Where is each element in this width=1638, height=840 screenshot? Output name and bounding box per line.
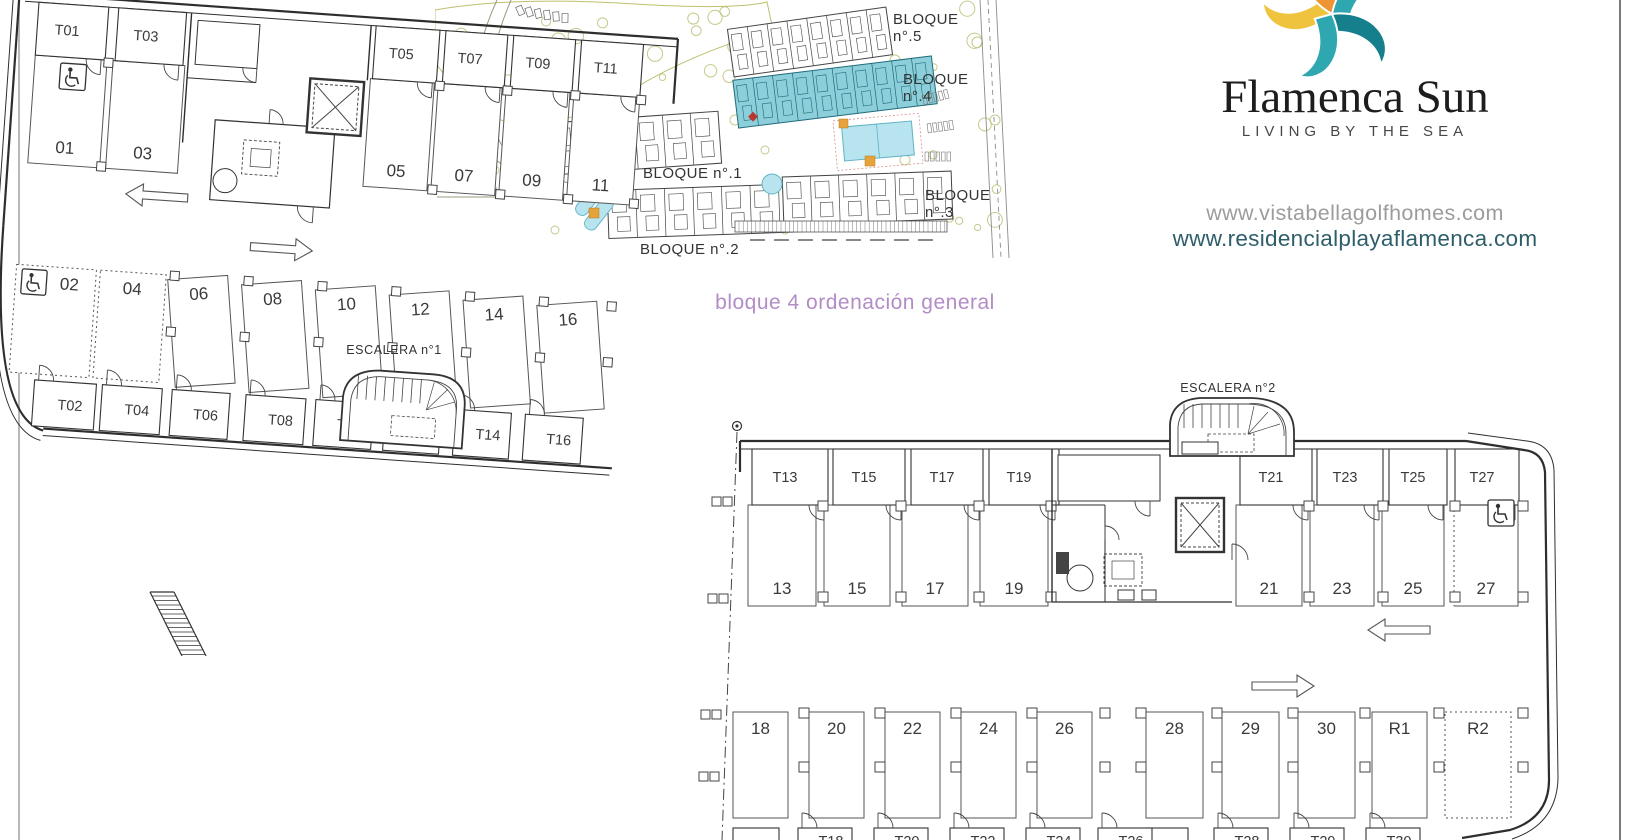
stall-number: 08	[263, 289, 283, 309]
ramp-hatch	[150, 592, 206, 656]
stall-number: 09	[522, 170, 542, 190]
storage-label: T24	[1047, 834, 1072, 840]
storage-label: T19	[1007, 470, 1032, 486]
storage-label: T30	[1387, 834, 1412, 840]
elevator	[1176, 498, 1224, 552]
parking-stall: 28	[1146, 712, 1203, 818]
stall-number: 27	[1477, 579, 1496, 598]
stall-number: 19	[1005, 579, 1024, 598]
storage-label: T01	[54, 22, 80, 40]
stall-number: 24	[979, 719, 998, 738]
parking-stall: 26	[1037, 712, 1092, 818]
stall-number: 02	[59, 274, 79, 294]
storage-label: T22	[971, 834, 996, 840]
traffic-arrow-icon	[250, 236, 313, 262]
stall-number: 03	[133, 143, 153, 163]
stall-number: 04	[122, 279, 142, 299]
parking-stall: 25	[1382, 505, 1444, 606]
traffic-arrow-icon	[1252, 675, 1314, 697]
parking-stall: 04	[93, 270, 166, 382]
storage-label: T16	[546, 432, 572, 450]
storage-label: T26	[1119, 834, 1144, 840]
storage-label: T05	[388, 46, 414, 64]
stall-number: 25	[1404, 579, 1423, 598]
stall-number: 30	[1317, 719, 1336, 738]
stall-number: 12	[410, 299, 430, 319]
traffic-arrow-icon	[1368, 619, 1430, 641]
stall-number: R2	[1467, 719, 1489, 738]
parking-stall: R2	[1445, 712, 1511, 818]
parking-stall: 30	[1298, 712, 1355, 818]
parking-stall: 08	[242, 281, 309, 393]
stall-number: 28	[1165, 719, 1184, 738]
parking-stall: 23	[1310, 505, 1374, 606]
stall-number: 22	[903, 719, 922, 738]
escalera-2-label: ESCALERA n°2	[1180, 381, 1276, 395]
parking-stall: 29	[1222, 712, 1279, 818]
stall-number: 10	[336, 294, 356, 314]
parking-stall: 13	[748, 505, 816, 606]
storage-label: T13	[773, 470, 798, 486]
stall-number: 05	[386, 161, 406, 181]
parking-stall: 11	[566, 93, 639, 205]
stall-number: 29	[1241, 719, 1260, 738]
accessible-parking-icon	[1488, 500, 1514, 526]
storage-label: T18	[819, 834, 844, 840]
storage-label: T23	[1333, 470, 1358, 486]
stall-number: 17	[926, 579, 945, 598]
storage-label: T08	[267, 412, 293, 430]
storage-label: T25	[1401, 470, 1426, 486]
storage-label: T17	[930, 470, 955, 486]
stall-number: 01	[55, 138, 75, 158]
storage-label: T27	[1470, 470, 1495, 486]
storage-unit: T26	[1098, 813, 1152, 840]
stall-number: 18	[751, 719, 770, 738]
elevator	[307, 78, 365, 136]
right-wing: 1315171921232527T13T15T17T19T21T23T25T27…	[733, 433, 1558, 840]
stall-number: 15	[848, 579, 867, 598]
parking-stall: 03	[106, 61, 185, 174]
accessible-parking-icon	[21, 269, 48, 296]
left-wing: 010305070911T01T03T05T07T09T110204060810…	[0, 0, 678, 483]
stall-number: 07	[454, 166, 474, 186]
parking-stall: 16	[537, 301, 604, 413]
stall-number: 14	[484, 304, 504, 324]
stall-number: 21	[1260, 579, 1279, 598]
storage-label: T20	[895, 834, 920, 840]
storage-label: T15	[852, 470, 877, 486]
stall-number: 13	[773, 579, 792, 598]
parking-stall: 24	[961, 712, 1016, 818]
storage-label: T02	[57, 398, 83, 416]
storage-label: T29	[1311, 834, 1336, 840]
stall-number: R1	[1389, 719, 1411, 738]
storage-label: T04	[124, 402, 150, 420]
stall-number: 20	[827, 719, 846, 738]
storage-label: T21	[1259, 470, 1284, 486]
stall-number: 23	[1333, 579, 1352, 598]
stairs-escalera-2	[1170, 398, 1294, 456]
garage-floor-plan: 010305070911T01T03T05T07T09T110204060810…	[0, 0, 1638, 840]
parking-stall: 06	[168, 275, 235, 387]
stairs-escalera-1	[340, 368, 467, 448]
stall-number: 26	[1055, 719, 1074, 738]
escalera-1-label: ESCALERA n°1	[346, 343, 442, 357]
parking-stall: 17	[902, 505, 968, 606]
storage-label: T07	[457, 51, 483, 69]
parking-stall: 22	[885, 712, 940, 818]
storage-label: T28	[1235, 834, 1260, 840]
parking-stall: 18	[733, 712, 788, 818]
storage-label: T03	[133, 28, 159, 46]
stall-number: 11	[591, 175, 610, 195]
parking-stall: 21	[1236, 505, 1302, 606]
stall-number: 16	[558, 310, 578, 330]
parking-stall: 19	[980, 505, 1048, 606]
stall-number: 06	[189, 284, 209, 304]
storage-label: T11	[593, 60, 618, 78]
traffic-arrow-icon	[125, 183, 188, 209]
parking-stall: R1	[1372, 712, 1427, 818]
parking-stall: 20	[809, 712, 864, 818]
storage-label: T14	[475, 427, 501, 445]
storage-label: T06	[193, 407, 219, 425]
storage-label: T09	[525, 55, 551, 73]
parking-stall: 14	[463, 296, 530, 408]
accessible-parking-icon	[59, 63, 87, 91]
parking-stall: 15	[824, 505, 890, 606]
